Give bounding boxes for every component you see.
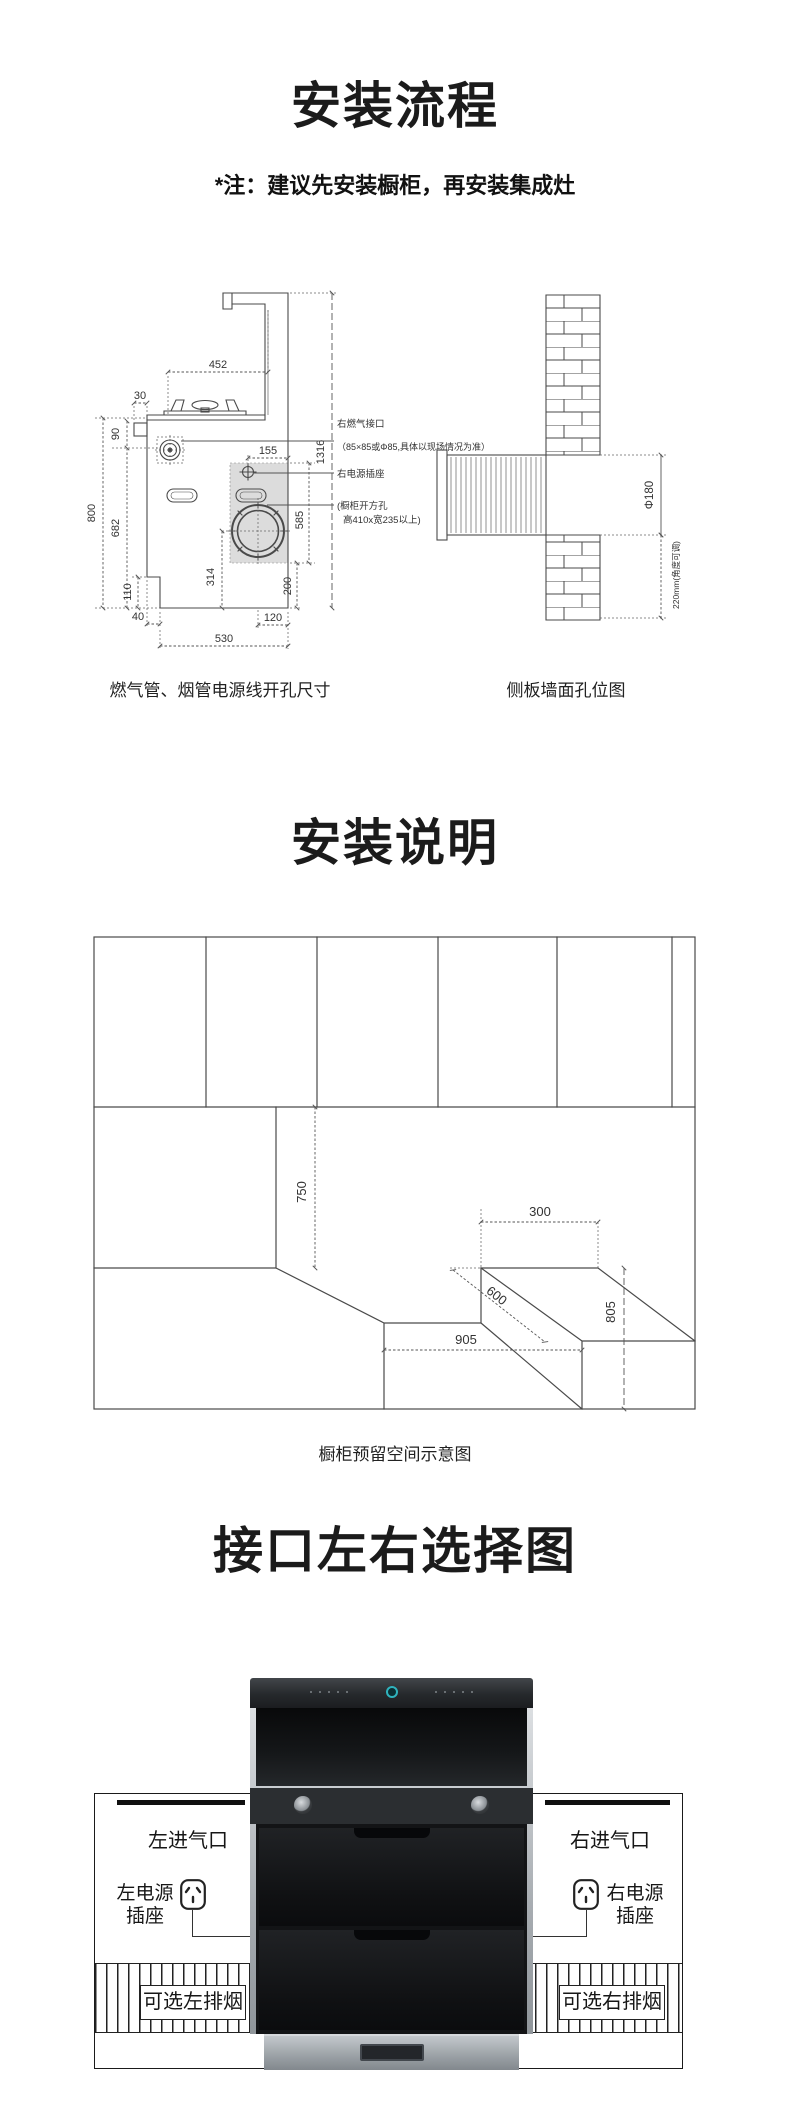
left-power-label: 左电源 插座 — [115, 1882, 175, 1928]
dim-gas-height: 682 — [110, 519, 122, 537]
dim-cutout-height: 585 — [294, 511, 306, 529]
dim-flue-center-height: 314 — [205, 568, 217, 586]
right-inlet-label: 右进气口 — [555, 1824, 665, 1853]
stove-body — [256, 1824, 527, 2034]
installation-guide-page: 安装流程 *注：建议先安装橱柜，再安装集成灶 — [0, 0, 790, 2126]
dim-toekick-depth: 40 — [132, 611, 144, 623]
annotation-gas-port-spec: （85×85或Φ85,具体以现场情况为准） — [337, 441, 490, 452]
left-exhaust-option: 可选左排烟 — [140, 1985, 246, 2020]
upper-drawer-handle — [354, 1828, 430, 1838]
dim-knob-offset: 30 — [134, 390, 146, 402]
right-power-line2: 插座 — [605, 1905, 665, 1928]
right-socket-connector — [528, 1910, 587, 1937]
right-gas-inlet-bar — [545, 1800, 670, 1805]
left-gas-inlet-bar — [117, 1800, 245, 1805]
lower-drawer — [259, 1930, 524, 2030]
right-exhaust-option: 可选右排烟 — [559, 1985, 665, 2020]
dim-base-depth: 530 — [215, 633, 233, 645]
install-note: *注：建议先安装橱柜，再安装集成灶 — [0, 168, 790, 200]
base-handle — [360, 2044, 424, 2061]
annotation-cabinet-hole-2: 高410x宽235以上) — [343, 514, 421, 526]
upper-drawer — [259, 1828, 524, 1926]
dim-hole-dia: Φ180 — [644, 481, 656, 509]
dim-toekick-height: 110 — [122, 583, 134, 601]
left-power-socket-icon — [180, 1879, 206, 1910]
stove-hood-cavity — [256, 1708, 527, 1790]
left-power-line1: 左电源 — [115, 1882, 175, 1905]
dim-flue-center-offset: 120 — [264, 612, 282, 624]
cabinet-space-drawing: 750 300 600 905 805 — [60, 925, 740, 1420]
right-power-label: 右电源 插座 — [605, 1882, 665, 1928]
dim-knob-height: 90 — [110, 428, 122, 440]
annotation-power-socket: 右电源插座 — [337, 468, 385, 480]
annotation-cabinet-hole-1: (橱柜开方孔 — [337, 500, 388, 512]
stove-right-rail — [527, 1708, 533, 2034]
section1-title: 安装流程 — [0, 78, 790, 134]
left-socket-connector — [192, 1910, 258, 1937]
left-burner-knob — [294, 1796, 312, 1814]
left-power-line2: 插座 — [115, 1905, 175, 1928]
right-burner-knob — [471, 1796, 489, 1814]
dim-counter-height-2: 805 — [603, 1301, 618, 1323]
right-power-socket-icon — [573, 1879, 599, 1910]
annotation-gas-port: 右燃气接口 — [337, 418, 385, 430]
dim-flue-bottom: 200 — [282, 577, 294, 595]
stove-base — [264, 2034, 519, 2070]
left-inlet-label: 左进气口 — [133, 1824, 243, 1853]
lower-drawer-handle — [354, 1930, 430, 1940]
stove-dimension-drawing: 452 30 90 682 800 110 40 530 314 — [60, 285, 740, 660]
stove-hood-top — [250, 1678, 533, 1708]
dim-counter-height: 800 — [86, 504, 98, 522]
wall-hole-drawing: Φ180 220mm(角度可调) — [437, 295, 681, 620]
dim-hole-height: 220mm(角度可调) — [671, 541, 681, 609]
dim-total-height: 1316 — [315, 440, 327, 464]
section2-title: 安装说明 — [0, 815, 790, 871]
cabinet-lines — [94, 937, 695, 1409]
indicator-dots-right — [435, 1691, 473, 1693]
dim-side-gap: 300 — [529, 1204, 551, 1219]
integrated-stove-product-image — [250, 1678, 533, 2070]
cabinet-drawing-caption: 橱柜预留空间示意图 — [0, 1440, 790, 1465]
control-display-icon — [386, 1686, 398, 1698]
cabinet-dimensions: 750 300 600 905 805 — [294, 1107, 624, 1409]
indicator-dots-left — [310, 1691, 348, 1693]
dim-socket-offset: 155 — [259, 445, 277, 457]
stove-cooktop — [250, 1786, 533, 1824]
stove-annotations: 右燃气接口 （85×85或Φ85,具体以现场情况为准） 右电源插座 (橱柜开方孔… — [181, 418, 490, 526]
dim-upper-gap: 750 — [294, 1181, 309, 1203]
right-power-line1: 右电源 — [605, 1882, 665, 1905]
wall-drawing-caption: 侧板墙面孔位图 — [406, 676, 726, 701]
section3-title: 接口左右选择图 — [0, 1523, 790, 1579]
stove-drawing-caption: 燃气管、烟管电源线开孔尺寸 — [60, 676, 380, 701]
dim-top-width: 452 — [209, 359, 227, 371]
stove-dimensions: 452 30 90 682 800 110 40 530 314 — [86, 293, 338, 649]
dim-slot-width: 905 — [455, 1332, 477, 1347]
